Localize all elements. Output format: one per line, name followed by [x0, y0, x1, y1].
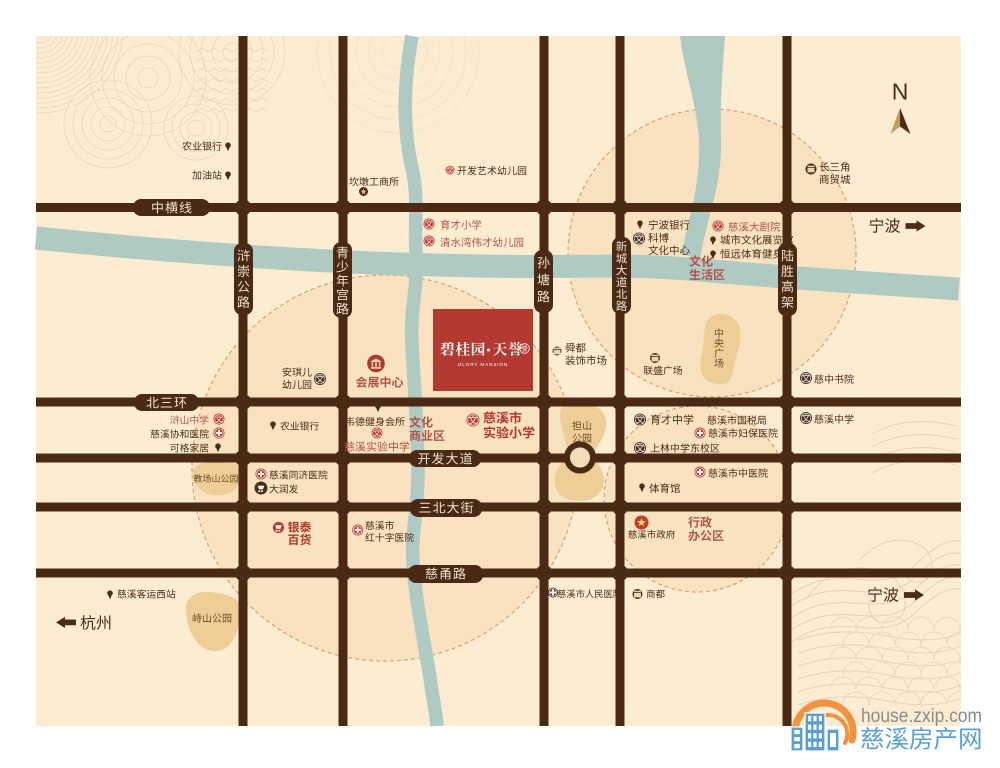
- svg-text:house.zxip.com: house.zxip.com: [861, 706, 982, 727]
- svg-text:N: N: [892, 79, 909, 105]
- svg-text:GLORY MANSION: GLORY MANSION: [458, 362, 508, 367]
